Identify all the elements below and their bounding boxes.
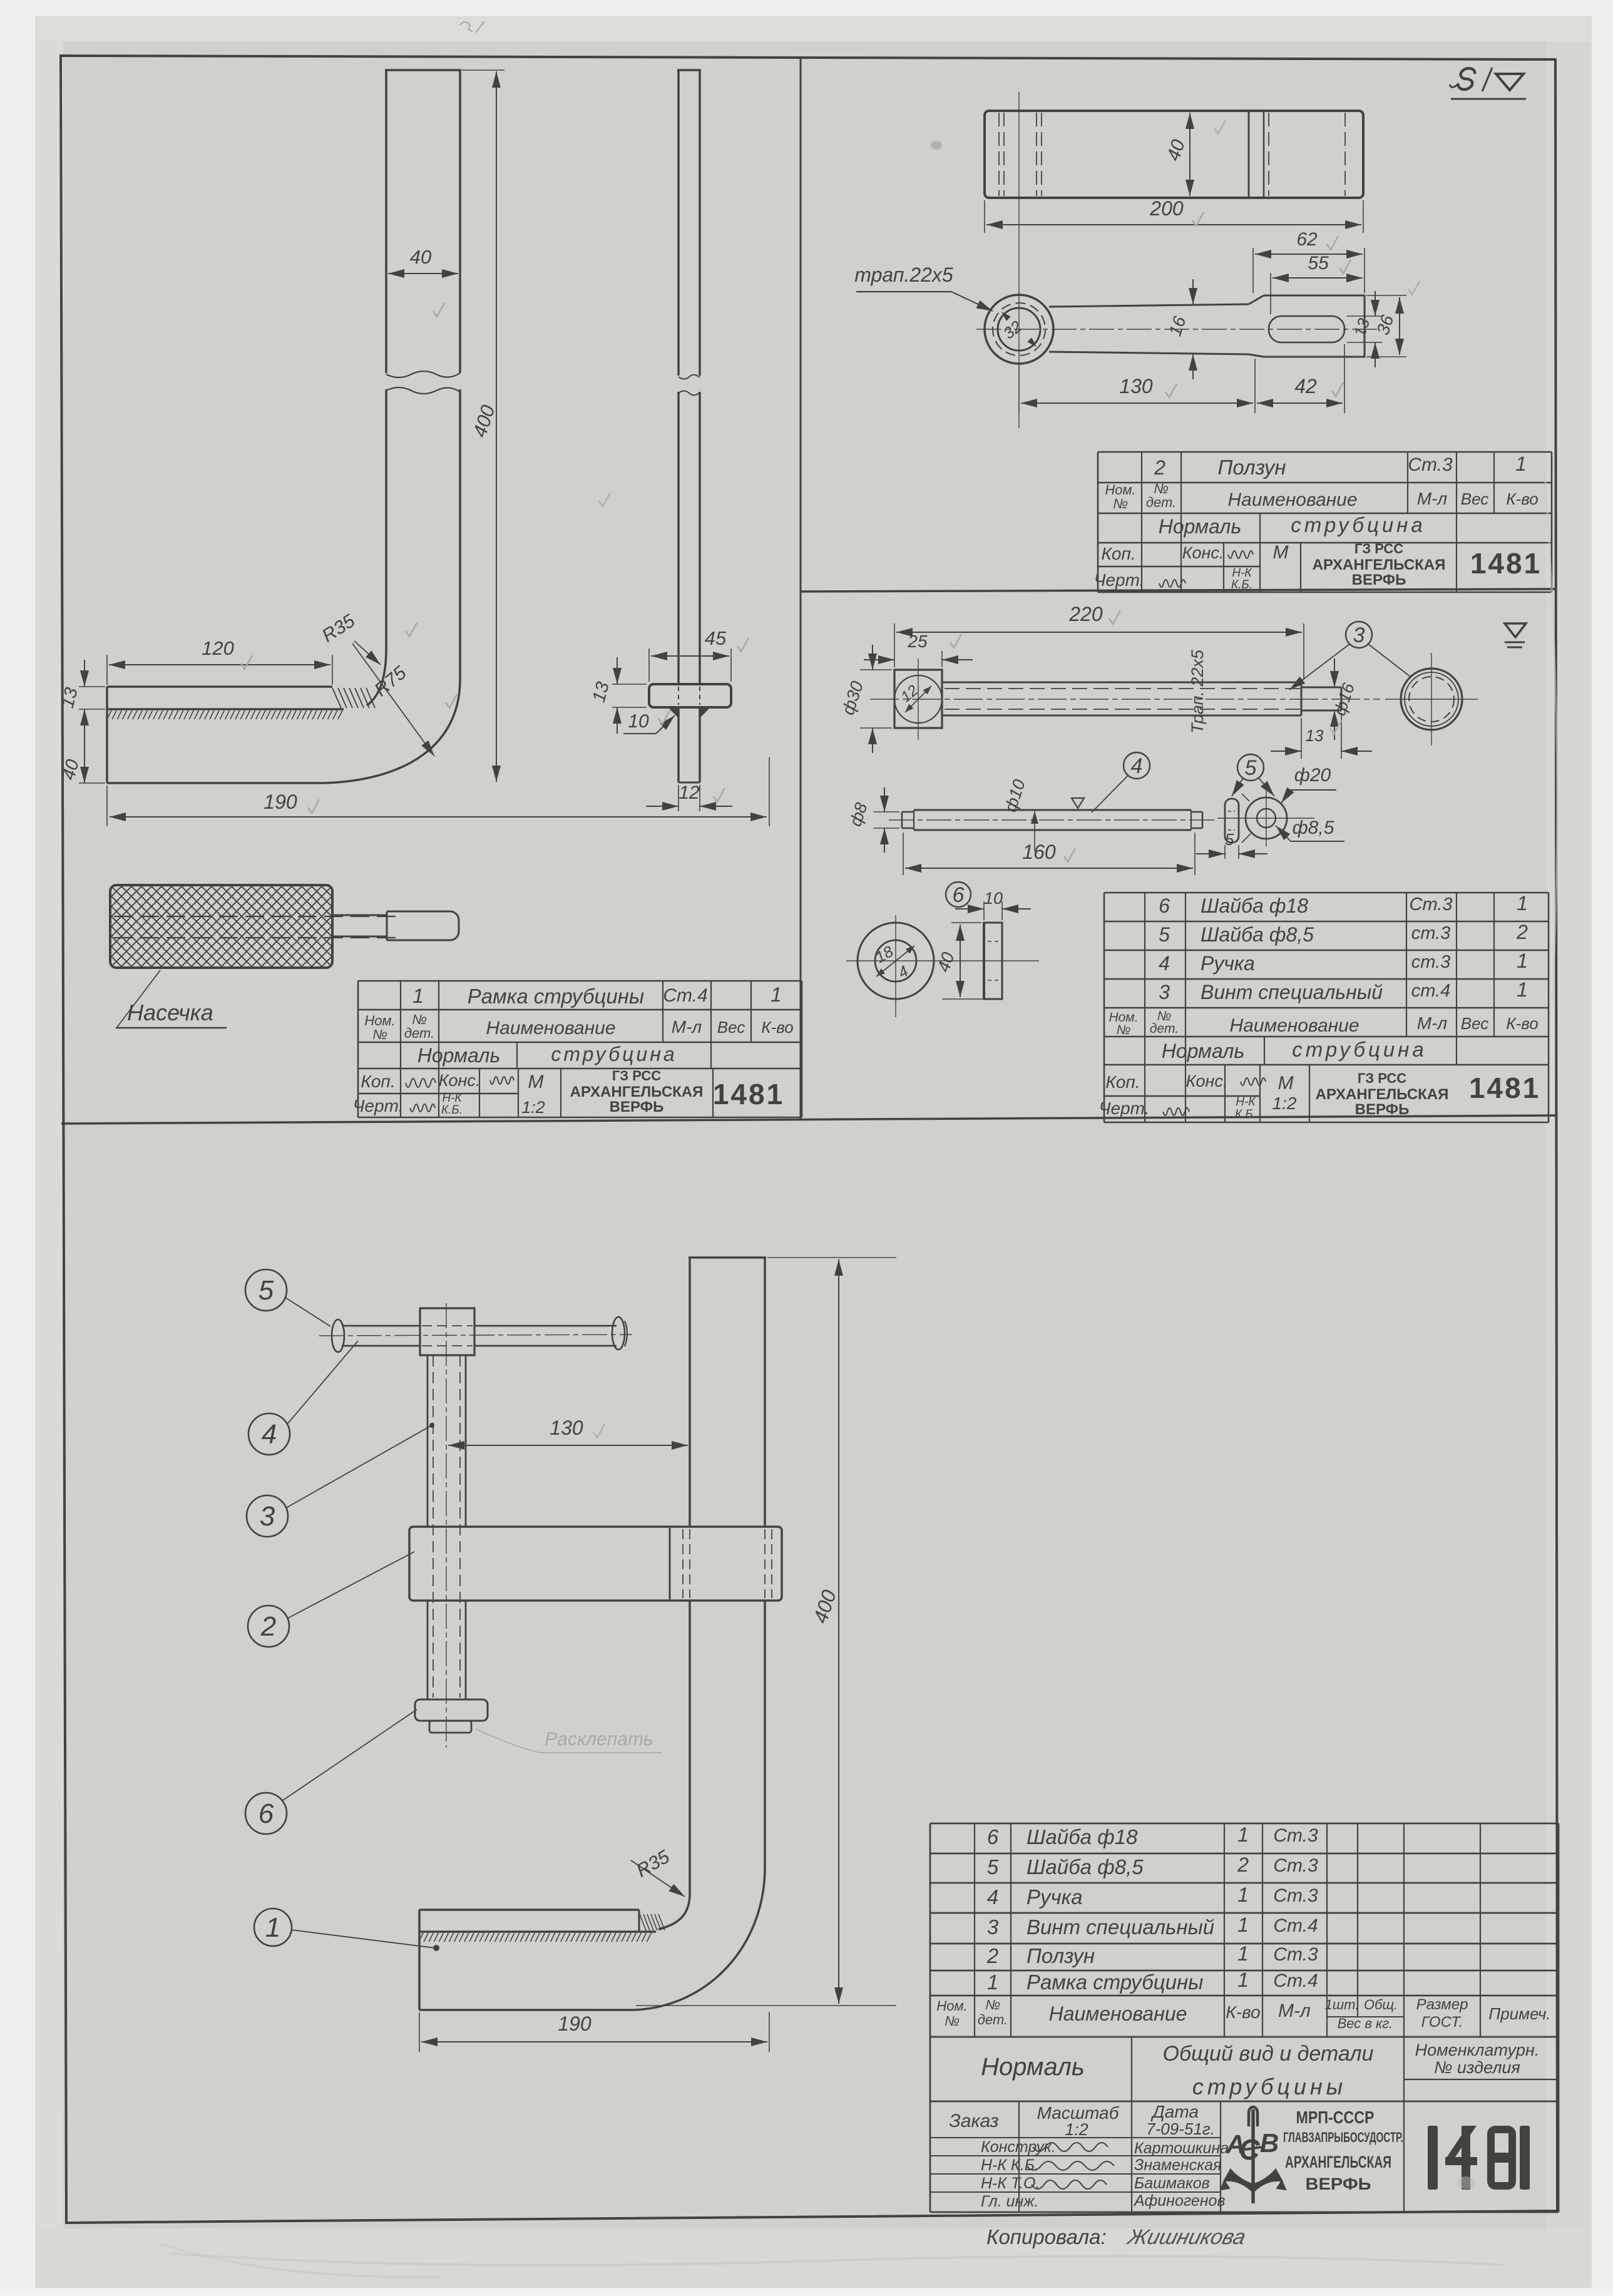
svg-text:1481: 1481 [1470,547,1542,580]
svg-text:АРХАНГЕЛЬСКАЯ: АРХАНГЕЛЬСКАЯ [1313,556,1446,573]
svg-text:4: 4 [262,1419,277,1450]
svg-text:Дата: Дата [1150,2102,1199,2121]
svg-text:Номенклатурн.: Номенклатурн. [1415,2041,1540,2059]
svg-text:В: В [1260,2128,1279,2158]
svg-text:5: 5 [987,1855,999,1878]
svg-text:№: № [372,1027,387,1042]
svg-text:Коп.: Коп. [361,1072,395,1091]
svg-text:ст.3: ст.3 [1411,923,1451,943]
svg-text:Ст.4: Ст.4 [1273,1971,1318,1991]
svg-text:Коп.: Коп. [1101,544,1135,563]
svg-text:трап.22х5: трап.22х5 [854,264,953,286]
svg-text:1:2: 1:2 [1065,2120,1088,2139]
svg-text:220: 220 [1068,603,1103,625]
svg-text:М: М [1273,542,1289,563]
svg-text:Примеч.: Примеч. [1488,2004,1550,2023]
svg-text:М: М [528,1072,544,1092]
svg-text:Шайба ф18: Шайба ф18 [1201,894,1308,917]
svg-text:Знаменская: Знаменская [1134,2156,1221,2174]
svg-text:дет.: дет. [1150,1022,1179,1036]
svg-text:Общий вид и детали: Общий вид и детали [1163,2042,1374,2066]
svg-text:ф8,5: ф8,5 [1293,817,1334,838]
svg-text:Коп.: Коп. [1105,1072,1140,1092]
svg-text:К-во: К-во [1226,2002,1260,2022]
svg-text:1: 1 [1237,1823,1249,1846]
svg-text:М-л: М-л [1417,489,1448,508]
svg-text:4: 4 [1131,754,1143,778]
svg-text:6: 6 [953,883,965,907]
svg-text:Черт.: Черт. [353,1096,404,1115]
svg-text:1: 1 [1237,1914,1249,1936]
svg-text:Картошкина: Картошкина [1134,2140,1229,2157]
svg-text:№: № [945,2013,960,2029]
svg-text:струбцина: струбцина [1291,513,1425,536]
svg-text:2: 2 [1237,1853,1249,1876]
svg-text:Общ.: Общ. [1364,1997,1398,2012]
svg-text:К.Б.: К.Б. [1231,578,1252,592]
svg-text:Н-К Т.О.: Н-К Т.О. [981,2175,1040,2192]
svg-text:Размер: Размер [1416,1996,1468,2013]
svg-text:ст.4: ст.4 [1411,981,1451,1001]
svg-text:3: 3 [987,1915,999,1939]
svg-text:Гл. инж.: Гл. инж. [981,2193,1038,2210]
svg-text:1481: 1481 [713,1078,784,1110]
svg-text:5: 5 [1159,923,1170,946]
svg-text:3: 3 [260,1501,275,1532]
svg-text:ГЗ РСС: ГЗ РСС [1358,1070,1406,1086]
svg-text:М-л: М-л [1417,1013,1448,1033]
svg-text:1:2: 1:2 [1272,1094,1297,1113]
svg-text:Жишникова: Жишникова [1124,2225,1248,2248]
svg-text:45: 45 [705,627,727,649]
svg-text:К-во: К-во [1506,1014,1538,1033]
svg-text:3: 3 [1159,981,1170,1003]
svg-text:ф20: ф20 [1294,765,1331,786]
svg-text:25: 25 [907,632,928,651]
svg-text:Копировала:: Копировала: [986,2225,1107,2248]
svg-text:5: 5 [259,1275,274,1306]
svg-text:130: 130 [550,1417,583,1439]
svg-text:ВЕРФЬ: ВЕРФЬ [610,1099,664,1115]
svg-text:Ст.3: Ст.3 [1273,1855,1318,1876]
svg-text:Ст.3: Ст.3 [1273,1885,1318,1906]
svg-text:62: 62 [1296,229,1318,250]
svg-text:Черт.: Черт. [1099,1099,1150,1118]
svg-text:ГЗ РСС: ГЗ РСС [612,1068,661,1084]
svg-text:6: 6 [259,1798,274,1829]
svg-text:Рамка струбцины: Рамка струбцины [468,985,644,1008]
svg-text:5: 5 [1245,756,1257,780]
svg-text:Рамка струбцины: Рамка струбцины [1027,1971,1203,1994]
svg-text:С: С [1239,2133,1260,2166]
svg-text:АРХАНГЕЛЬСКАЯ: АРХАНГЕЛЬСКАЯ [570,1084,704,1100]
svg-text:120: 120 [202,637,234,659]
svg-text:10: 10 [984,889,1003,908]
svg-text:Наименование: Наименование [1049,2002,1187,2025]
svg-text:7-09-51г.: 7-09-51г. [1146,2119,1215,2138]
svg-text:Трап. 22х5: Трап. 22х5 [1188,649,1207,734]
svg-text:струбцина: струбцина [1292,1038,1426,1061]
svg-text:13: 13 [1306,726,1324,745]
svg-text:1: 1 [1237,1969,1249,1991]
svg-text:3: 3 [1353,623,1365,647]
svg-text:1: 1 [1517,978,1528,1001]
svg-text:М: М [1278,1073,1294,1094]
svg-text:Вес в кг.: Вес в кг. [1338,2016,1393,2031]
svg-text:К-во: К-во [1506,489,1538,508]
svg-text:1:2: 1:2 [521,1098,545,1117]
svg-text:Шайба ф18: Шайба ф18 [1027,1825,1138,1848]
svg-text:6: 6 [1159,894,1170,917]
svg-text:Ст.4: Ст.4 [663,985,707,1006]
svg-text:ГОСТ.: ГОСТ. [1421,2014,1463,2031]
svg-text:Насечка: Насечка [127,1000,213,1025]
svg-text:4: 4 [1159,952,1170,975]
svg-text:Ст.3: Ст.3 [1273,1944,1318,1965]
svg-text:42: 42 [1294,375,1317,397]
svg-text:ГЗ РСС: ГЗ РСС [1354,541,1403,556]
svg-text:Нормаль: Нормаль [1159,515,1242,538]
svg-text:ВЕРФЬ: ВЕРФЬ [1352,571,1406,588]
svg-text:2: 2 [1154,456,1165,479]
svg-text:160: 160 [1022,841,1056,863]
svg-text:Заказ: Заказ [949,2111,998,2131]
svg-text:Вес: Вес [717,1018,745,1037]
svg-text:К.Б.: К.Б. [1235,1108,1256,1121]
svg-text:1шт.: 1шт. [1325,1997,1360,2012]
svg-text:130: 130 [1119,375,1153,397]
svg-text:Ручка: Ручка [1201,952,1255,975]
svg-text:М-л: М-л [672,1017,702,1037]
svg-text:Ном.: Ном. [936,1998,967,2014]
svg-text:МРП-СССР: МРП-СССР [1296,2108,1375,2127]
svg-text:дет.: дет. [404,1025,434,1041]
svg-text:5: 5 [1225,830,1234,849]
svg-text:Ст.3: Ст.3 [1408,454,1453,475]
svg-text:Наименование: Наименование [1227,489,1357,510]
svg-text:1481: 1481 [1469,1072,1540,1104]
svg-text:40: 40 [410,246,431,268]
svg-text:Винт специальный: Винт специальный [1027,1915,1214,1939]
svg-text:2: 2 [986,1944,998,1967]
svg-text:Н-К: Н-К [1232,566,1252,580]
svg-text:Ручка: Ручка [1027,1885,1083,1909]
svg-text:ГЛАВЗАПРЫБОСУДОСТР.: ГЛАВЗАПРЫБОСУДОСТР. [1283,2129,1403,2145]
svg-text:дет.: дет. [978,2012,1008,2027]
svg-text:Афиногенов: Афиногенов [1133,2192,1226,2210]
svg-text:1: 1 [987,1971,998,1994]
svg-text:Н-К: Н-К [1236,1095,1256,1109]
svg-text:12: 12 [678,782,700,803]
svg-text:Наименование: Наименование [486,1018,615,1038]
svg-text:1: 1 [1237,1942,1249,1965]
svg-text:Наименование: Наименование [1229,1015,1359,1036]
svg-text:55: 55 [1308,253,1329,274]
svg-text:Ползун: Ползун [1217,456,1286,479]
svg-text:2: 2 [1516,921,1528,943]
svg-text:Нормаль: Нормаль [1162,1040,1245,1062]
svg-text:10: 10 [628,711,649,732]
svg-text:М-л: М-л [1278,2001,1311,2021]
svg-text:струбцина: струбцина [551,1043,677,1065]
svg-text:Конс.: Конс. [1186,1072,1228,1090]
svg-text:№: № [1117,1023,1131,1037]
svg-text:№: № [985,1997,1000,2012]
svg-text:4: 4 [987,1885,998,1909]
svg-text:1: 1 [1237,1883,1249,1906]
svg-text:1: 1 [1517,892,1528,915]
svg-text:Конс.: Конс. [1182,543,1224,562]
svg-text:Конс.: Конс. [439,1071,481,1090]
svg-text:200: 200 [1149,197,1184,220]
svg-text:Нормаль: Нормаль [981,2053,1085,2081]
svg-text:Черт.: Черт. [1094,570,1145,590]
svg-text:1: 1 [412,985,424,1007]
svg-text:Винт специальный: Винт специальный [1201,981,1383,1003]
svg-text:дет.: дет. [1146,495,1176,510]
svg-text:Ползун: Ползун [1027,1944,1095,1967]
svg-text:190: 190 [558,2012,591,2035]
svg-text:Шайба ф8,5: Шайба ф8,5 [1201,923,1314,946]
svg-text:Нормаль: Нормаль [417,1044,501,1067]
svg-text:струбцины: струбцины [1192,2074,1346,2099]
svg-text:Ст.4: Ст.4 [1273,1915,1318,1936]
svg-text:АРХАНГЕЛЬСКАЯ: АРХАНГЕЛЬСКАЯ [1316,1086,1449,1103]
svg-text:Шайба ф8,5: Шайба ф8,5 [1027,1855,1144,1878]
svg-text:АРХАНГЕЛЬСКАЯ: АРХАНГЕЛЬСКАЯ [1285,2153,1391,2171]
svg-text:Ст.3: Ст.3 [1410,894,1453,915]
svg-text:6: 6 [987,1825,999,1848]
svg-text:ВЕРФЬ: ВЕРФЬ [1355,1101,1410,1118]
svg-text:К.Б.: К.Б. [441,1104,463,1117]
svg-text:Ст.3: Ст.3 [1273,1825,1318,1846]
svg-text:К-во: К-во [761,1018,793,1037]
svg-text:1: 1 [1515,453,1527,475]
svg-text:Н-К: Н-К [442,1092,463,1105]
svg-text:Вес: Вес [1461,489,1489,508]
svg-text:ВЕРФЬ: ВЕРФЬ [1306,2175,1371,2193]
svg-text:ст.3: ст.3 [1411,952,1451,972]
svg-text:№ изделия: № изделия [1434,2058,1520,2077]
svg-text:№: № [1113,496,1128,511]
svg-text:2: 2 [260,1611,276,1642]
svg-text:Башмаков: Башмаков [1134,2175,1210,2192]
svg-text:1: 1 [771,983,782,1006]
svg-text:Расклепать: Расклепать [545,1729,653,1750]
svg-text:1: 1 [265,1912,280,1943]
svg-text:1: 1 [1517,950,1528,972]
svg-text:Вес: Вес [1461,1014,1489,1033]
svg-text:Н-К К.Б.: Н-К К.Б. [981,2156,1039,2174]
svg-text:190: 190 [264,791,297,813]
